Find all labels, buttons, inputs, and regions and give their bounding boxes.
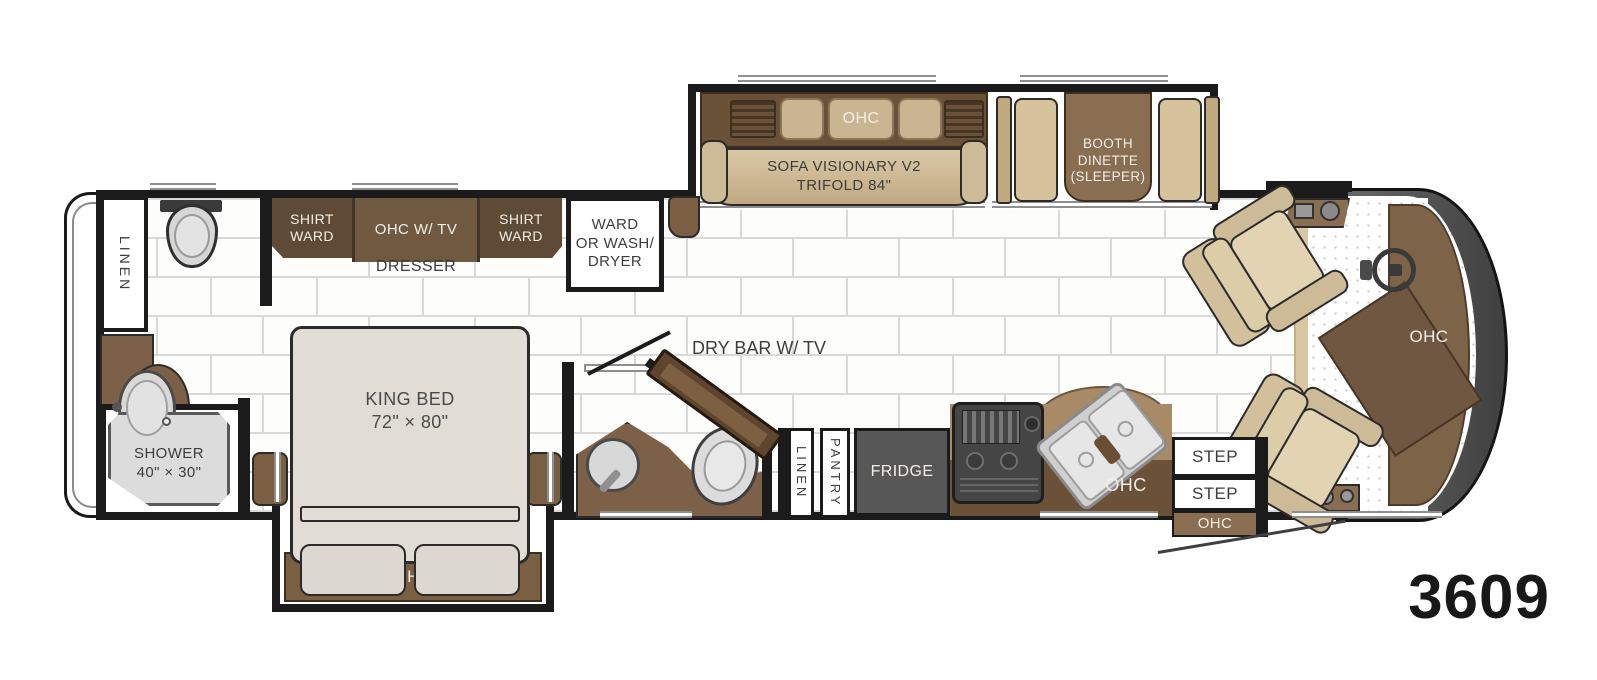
- kitchen-ohc-label: OHC: [1084, 474, 1168, 497]
- sofa-ohc-label: OHC: [828, 98, 894, 140]
- nightstand-left: [252, 452, 288, 506]
- sofa-armrest: [960, 140, 988, 204]
- slide-rail: [738, 75, 936, 82]
- king-bed-label: KING BED 72" × 80": [310, 388, 510, 433]
- cooktop-grill-detail: [962, 410, 1020, 444]
- sofa-armrest: [700, 140, 728, 204]
- bed-footboard: [300, 506, 520, 522]
- pillow: [414, 544, 520, 596]
- wall-segment: [562, 362, 574, 518]
- king-bed-line2: 72" × 80": [372, 411, 449, 434]
- ward-wd-line3: DRYER: [588, 253, 642, 272]
- rear-bath-sink-bowl: [126, 380, 168, 436]
- nightstand-right: [526, 452, 562, 506]
- dinette-bench-seat: [1014, 98, 1058, 202]
- slide-rail: [992, 201, 1212, 208]
- sofa-label-line1: SOFA VISIONARY V2: [767, 158, 921, 177]
- rear-linen-cabinet: LINEN: [100, 196, 148, 332]
- entry-step-2: STEP: [1172, 477, 1258, 511]
- shirt-wardrobe-left: SHIRT WARD: [272, 198, 352, 258]
- model-number: 3609: [1360, 562, 1550, 633]
- shirt-ward-right-line2: WARD: [499, 228, 543, 246]
- cooktop-vent-detail: [960, 478, 1038, 496]
- booth-dinette-table: BOOTH DINETTE (SLEEPER): [1064, 92, 1152, 202]
- slide-rail: [547, 452, 554, 502]
- booth-label-line1: BOOTH: [1083, 136, 1133, 153]
- wall-segment: [778, 428, 788, 518]
- dinette-bench-back: [996, 96, 1012, 204]
- ward-wd-line1: WARD: [592, 216, 639, 235]
- wall-segment: [238, 398, 250, 518]
- king-bed: [290, 326, 530, 564]
- shower-label-line2: 40" × 30": [137, 464, 202, 483]
- rear-cap-inner-line: [72, 202, 102, 508]
- dinette-bench-back: [1204, 96, 1220, 204]
- cabinet-vent-detail: [730, 100, 776, 138]
- wall-segment: [1258, 437, 1268, 537]
- dinette-bench-seat: [1158, 98, 1202, 202]
- console-cupholder: [1320, 201, 1340, 221]
- pantry-cabinet: PANTRY: [820, 428, 850, 518]
- sink-drain-icon: [1075, 448, 1097, 470]
- booth-label-line2: DINETTE: [1078, 153, 1139, 170]
- ward-wd-line2: OR WASH/: [576, 235, 654, 254]
- wall-segment: [260, 196, 272, 306]
- rear-toilet-seat: [174, 214, 210, 258]
- floorplan-canvas: OHC SOFA VISIONARY V2 TRIFOLD 84" BOOTH …: [0, 0, 1597, 680]
- cooktop-burner: [1000, 452, 1018, 470]
- shower-label-line1: SHOWER: [134, 445, 204, 464]
- entry-door-rail: [1292, 511, 1442, 518]
- cooktop-knob: [1024, 416, 1040, 432]
- slide-rail: [274, 452, 281, 502]
- pillow: [300, 544, 406, 596]
- shirt-wardrobe-right: SHIRT WARD: [480, 198, 562, 258]
- king-bed-line1: KING BED: [365, 388, 454, 411]
- wardrobe-washer-dryer: WARD OR WASH/ DRYER: [566, 196, 664, 292]
- shower-drain-icon: [162, 417, 171, 426]
- slide-rail: [150, 183, 216, 190]
- shirt-ward-left-line2: WARD: [290, 228, 334, 246]
- sofa-headrest-cushion: [780, 98, 824, 140]
- hall-linen-cabinet: LINEN: [788, 428, 814, 518]
- slide-rail: [352, 183, 458, 190]
- dry-bar-label: DRY BAR W/ TV: [692, 338, 862, 359]
- steering-column: [1360, 260, 1372, 280]
- slide-rail: [1020, 75, 1168, 82]
- dash-ohc-label: OHC: [1398, 326, 1460, 347]
- overhead-cabinet-tv: OHC W/ TV: [352, 198, 480, 262]
- sofa-visionary-trifold: SOFA VISIONARY V2 TRIFOLD 84": [702, 148, 986, 206]
- cabinet-vent-detail: [944, 100, 984, 138]
- slide-rail: [600, 511, 692, 518]
- slide-rail: [1040, 511, 1158, 518]
- shirt-ward-right-line1: SHIRT: [499, 211, 543, 229]
- entry-overhead-cabinet: OHC: [1172, 511, 1258, 537]
- cooktop-burner: [966, 452, 984, 470]
- steering-wheel-hub: [1388, 264, 1402, 276]
- refrigerator: FRIDGE: [854, 428, 950, 516]
- entry-step-1: STEP: [1172, 437, 1258, 477]
- sofa-end-table: [668, 196, 700, 238]
- mid-bath-sink: [586, 438, 640, 492]
- shirt-ward-left-line1: SHIRT: [290, 211, 334, 229]
- sofa-headrest-cushion: [898, 98, 942, 140]
- sofa-label-line2: TRIFOLD 84": [797, 177, 892, 196]
- booth-label-line3: (SLEEPER): [1071, 169, 1146, 186]
- rear-bath-faucet: [112, 402, 122, 412]
- dresser-label: DRESSER: [350, 257, 482, 277]
- sink-drain-icon: [1114, 418, 1136, 440]
